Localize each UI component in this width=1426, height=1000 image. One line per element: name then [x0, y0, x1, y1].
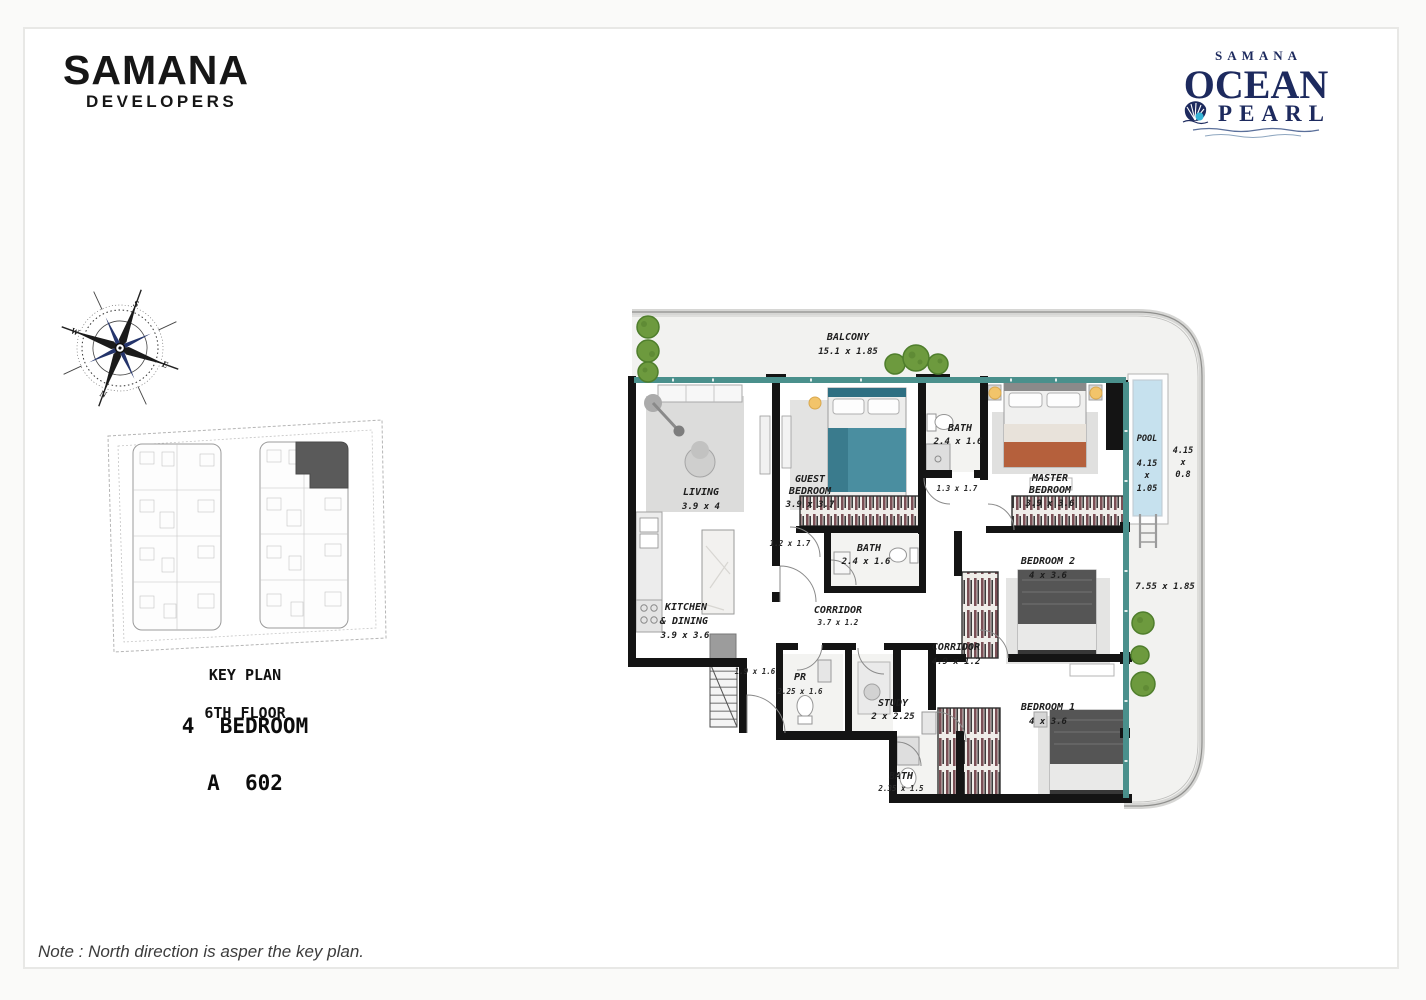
label-pr: PR: [794, 672, 806, 683]
dims-study: 2 x 2.25: [870, 712, 915, 722]
label-master-bedroom-1: MASTER: [1031, 473, 1068, 484]
dims-hall-2: 1.3 x 1.7: [937, 484, 978, 493]
dims-living: 3.9 x 4: [681, 502, 720, 512]
label-bedroom-1: BEDROOM 1: [1020, 702, 1075, 713]
dims-bedroom-2: 4 x 3.6: [1029, 571, 1068, 581]
dims-bath-top: 2.4 x 1.6: [933, 437, 983, 447]
dims-kitchen: 3.9 x 3.6: [660, 631, 710, 641]
label-study: STUDY: [878, 698, 909, 709]
label-corridor-main: CORRIDOR: [814, 605, 862, 616]
dims-pool-w: 4.15: [1137, 459, 1157, 469]
label-kitchen-2: & DINING: [659, 616, 708, 627]
dims-bath-mid: 2.4 x 1.6: [841, 557, 891, 567]
compass-west-label: W: [69, 326, 81, 338]
label-living: LIVING: [683, 487, 719, 498]
dims-hall-1: 1.2 x 1.7: [770, 539, 811, 548]
dims-terrace: 7.55 x 1.85: [1135, 582, 1195, 592]
compass-east-label: E: [160, 358, 170, 370]
label-bedroom-2: BEDROOM 2: [1020, 556, 1075, 567]
floor-plan-sheet: { "branding": { "developer": { "name": "…: [0, 0, 1426, 1000]
label-balcony: BALCONY: [826, 332, 870, 343]
dims-pool-l: 1.05: [1137, 484, 1157, 494]
label-guest-bedroom-2: BEDROOM: [788, 486, 832, 497]
label-bath-top: BATH: [947, 423, 973, 434]
label-bath-bottom: BATH: [888, 771, 914, 782]
dims-pool-deck-w: 4.15: [1173, 446, 1193, 456]
floor-plan: BALCONY 15.1 x 1.85 LIVING 3.9 x 4 GUEST…: [628, 312, 1202, 806]
compass-north-label: N: [98, 388, 109, 400]
label-kitchen-1: KITCHEN: [664, 602, 708, 613]
dims-corridor-right: 4.9 x 1.2: [932, 657, 981, 667]
label-corridor-right: CORRIDOR: [932, 642, 980, 653]
dims-foyer: 1.9 x 1.6: [735, 667, 776, 676]
bedroom1-wardrobe: [938, 708, 1000, 796]
label-guest-bedroom-1: GUEST: [795, 474, 826, 485]
stairs: [710, 663, 737, 727]
dims-corridor-main: 3.7 x 1.2: [817, 618, 859, 627]
dims-balcony: 15.1 x 1.85: [818, 347, 878, 357]
dims-pool-deck-l: 0.8: [1175, 470, 1190, 480]
dims-pool-deck-x: x: [1179, 458, 1186, 468]
dims-bedroom-1: 4 x 3.6: [1029, 717, 1068, 727]
dims-pool-x: x: [1143, 471, 1150, 481]
label-pool: POOL: [1137, 434, 1157, 444]
key-plan-drawing: [108, 420, 386, 652]
compass-south-label: S: [132, 298, 140, 309]
sheet-graphics: S N W E: [0, 0, 1426, 1000]
dims-master-bedroom: 3.9 x 3.6: [1025, 499, 1075, 509]
compass-rose: S N W E: [41, 269, 200, 428]
dims-bath-bottom: 2.35 x 1.5: [877, 784, 924, 793]
dims-pr: 2.25 x 1.6: [776, 687, 823, 696]
label-bath-mid: BATH: [856, 543, 882, 554]
label-master-bedroom-2: BEDROOM: [1028, 485, 1072, 496]
dims-guest-bedroom: 3.9 x 3.7: [785, 500, 835, 510]
